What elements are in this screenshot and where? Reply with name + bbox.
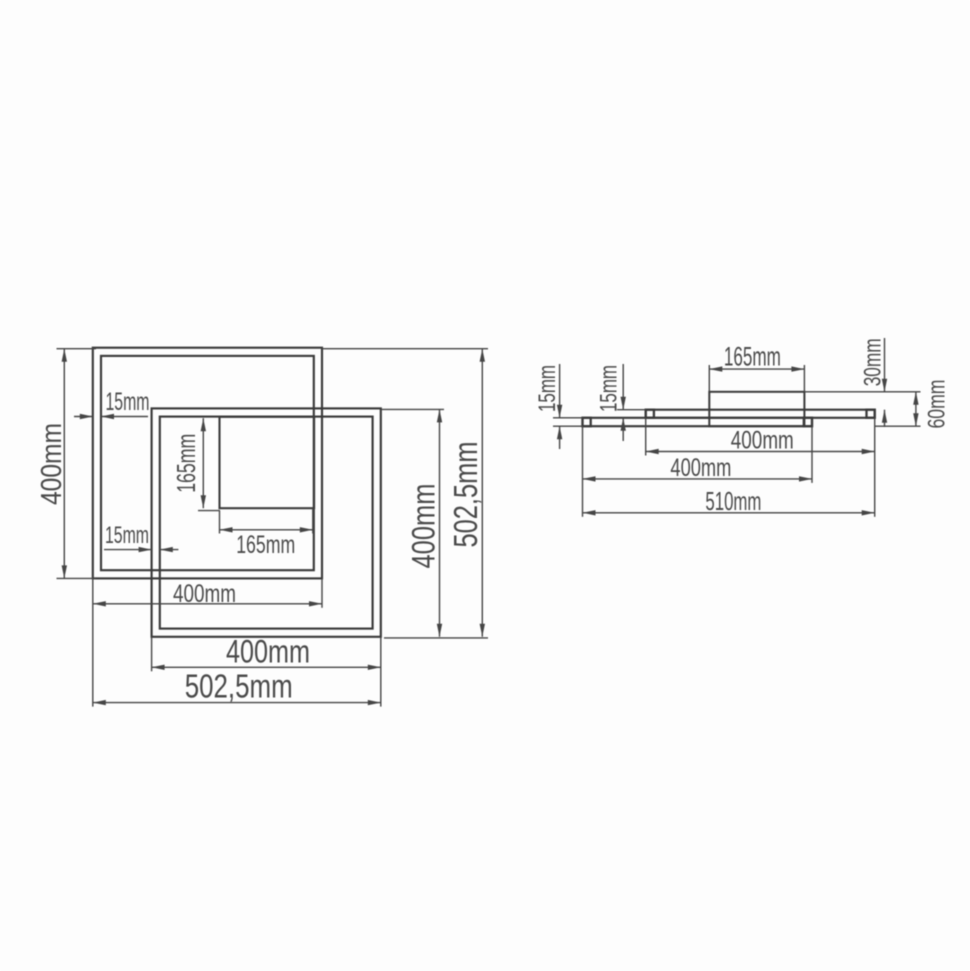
- svg-text:15mm: 15mm: [534, 365, 561, 412]
- svg-text:60mm: 60mm: [924, 380, 951, 429]
- svg-text:400mm: 400mm: [405, 484, 441, 569]
- svg-text:400mm: 400mm: [731, 426, 794, 454]
- svg-text:400mm: 400mm: [173, 580, 236, 608]
- svg-text:502,5mm: 502,5mm: [447, 442, 484, 548]
- svg-text:510mm: 510mm: [705, 486, 761, 516]
- svg-text:165mm: 165mm: [171, 434, 201, 493]
- svg-text:400mm: 400mm: [226, 634, 310, 670]
- svg-text:502,5mm: 502,5mm: [185, 667, 293, 704]
- svg-text:30mm: 30mm: [860, 338, 887, 386]
- svg-text:400mm: 400mm: [670, 454, 731, 482]
- svg-text:15mm: 15mm: [105, 522, 149, 549]
- svg-text:400mm: 400mm: [36, 423, 68, 505]
- svg-text:165mm: 165mm: [724, 342, 781, 372]
- svg-text:15mm: 15mm: [595, 365, 622, 412]
- svg-text:165mm: 165mm: [236, 531, 295, 559]
- svg-text:15mm: 15mm: [106, 388, 150, 416]
